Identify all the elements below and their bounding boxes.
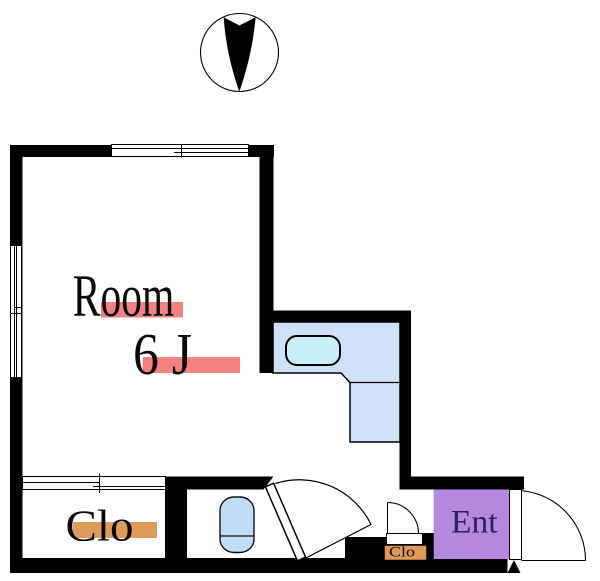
svg-text:Clo: Clo [66, 502, 134, 551]
svg-text:Ent: Ent [451, 505, 498, 541]
svg-text:6 J: 6 J [133, 321, 192, 387]
svg-text:Room: Room [73, 263, 175, 329]
svg-text:Clo: Clo [389, 545, 415, 561]
